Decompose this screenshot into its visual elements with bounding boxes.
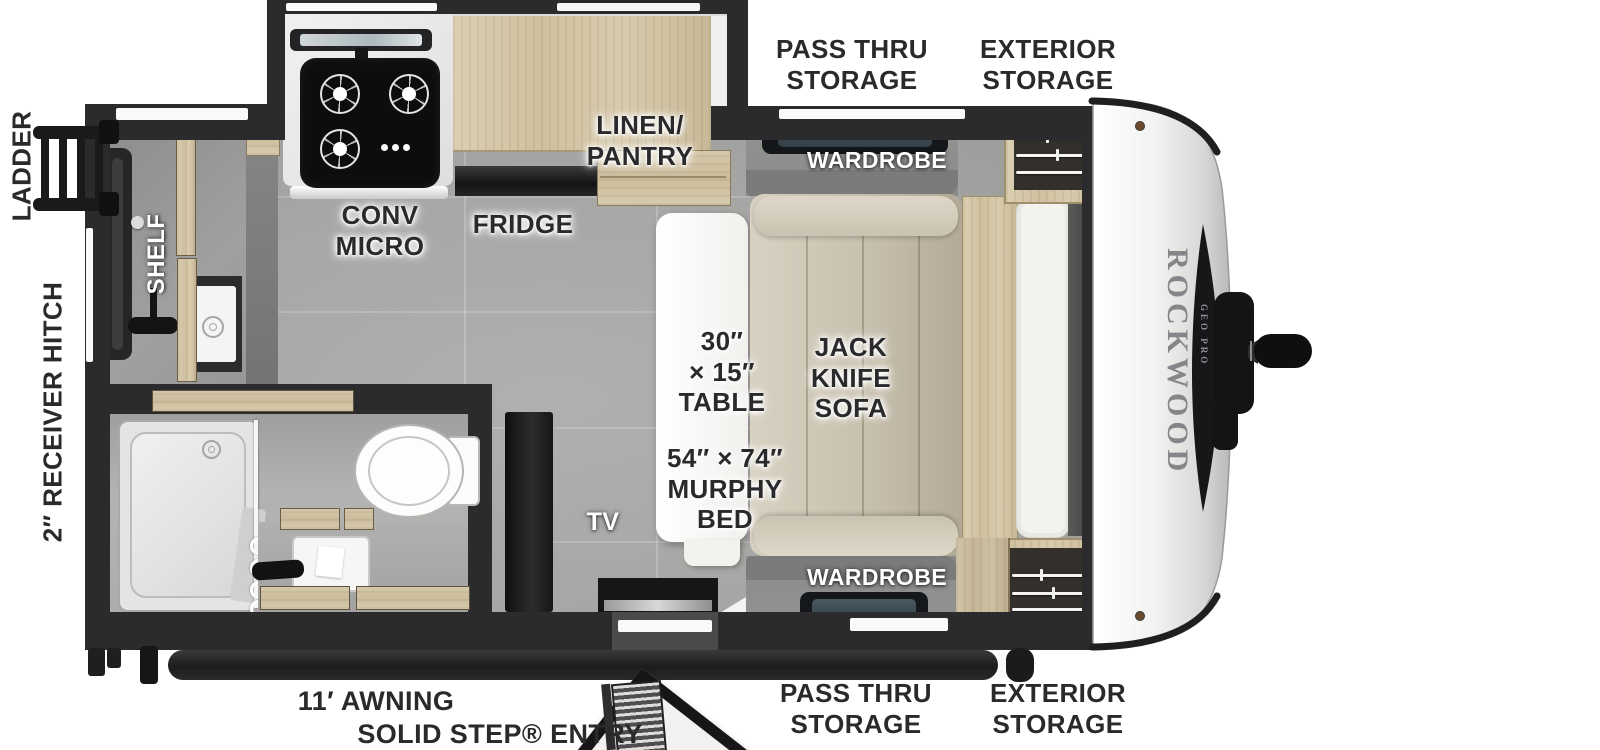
- window-strip: [116, 108, 248, 120]
- tv-cabinet: [505, 412, 553, 612]
- door-threshold: [618, 620, 712, 632]
- rod-hook: [1040, 569, 1043, 581]
- tub-drain: [202, 440, 221, 459]
- toilet-seat: [368, 436, 450, 506]
- label-murphy-bed: 54″ × 74″ MURPHY BED: [635, 443, 815, 535]
- burner: [389, 74, 429, 114]
- brand-logo: ROCKWOOD: [1152, 226, 1194, 498]
- shelf-divider: [177, 258, 197, 382]
- brand-sub-logo: GEO PRO: [1196, 304, 1209, 380]
- vanity-faucet: [251, 559, 304, 581]
- label-wardrobe-top: WARDROBE: [797, 147, 957, 174]
- vanity-wood-piece: [280, 508, 340, 530]
- window-strip: [286, 3, 437, 11]
- label-exterior-storage-top: EXTERIOR STORAGE: [948, 34, 1148, 95]
- awning-joint: [998, 652, 1006, 678]
- murphy-bed-table-leg: [684, 540, 740, 566]
- cooktop-knob: [392, 144, 399, 151]
- ladder-icon: [33, 120, 119, 218]
- burner: [320, 129, 360, 169]
- slideout-left-wall: [267, 0, 285, 140]
- window-strip: [850, 618, 948, 631]
- awning-rail: [168, 650, 998, 680]
- bathtub-inner: [130, 432, 246, 598]
- awning-bracket: [140, 646, 158, 684]
- bed-platform: [962, 196, 1018, 540]
- tongue-jack-foot: [1212, 406, 1238, 450]
- label-wardrobe-bottom: WARDROBE: [797, 564, 957, 591]
- label-pass-thru-storage-bottom: PASS THRU STORAGE: [756, 678, 956, 739]
- label-ladder: LADDER: [7, 111, 38, 222]
- window-strip: [779, 109, 965, 119]
- marker-light: [1136, 612, 1145, 621]
- label-jack-knife-sofa: JACK KNIFE SOFA: [771, 332, 931, 424]
- label-exterior-storage-bottom: EXTERIOR STORAGE: [958, 678, 1158, 739]
- label-linen-pantry: LINEN/ PANTRY: [560, 110, 720, 171]
- rear-window-strip: [86, 228, 93, 362]
- rear-bumper: [88, 648, 105, 676]
- marker-light: [1136, 122, 1145, 131]
- label-receiver-hitch: 2″ RECEIVER HITCH: [38, 282, 69, 543]
- label-fridge: FRIDGE: [443, 209, 603, 240]
- shelf-divider: [176, 132, 196, 256]
- awning-end-cap: [1006, 648, 1034, 682]
- vanity-wood-piece: [344, 508, 374, 530]
- window-strip: [557, 3, 700, 11]
- bottom-wall-left: [85, 612, 612, 650]
- burner: [320, 74, 360, 114]
- rear-bumper: [107, 648, 121, 668]
- label-pass-thru-storage-top: PASS THRU STORAGE: [752, 34, 952, 95]
- rear-sink-drain: [202, 316, 224, 338]
- slideout-right-wall: [727, 0, 748, 116]
- drawer-line: [600, 176, 726, 178]
- cooktop-knob: [381, 144, 388, 151]
- label-shelf: SHELF: [143, 214, 171, 295]
- rod-hook: [1052, 587, 1055, 599]
- cooktop-knob: [403, 144, 410, 151]
- label-tv: TV: [573, 508, 633, 538]
- rear-cabinet-column: [246, 138, 278, 392]
- label-solid-step-entry: SOLID STEP® ENTRY: [350, 719, 650, 750]
- rod-hook: [1056, 149, 1059, 161]
- sofa-bolster-top: [754, 196, 958, 236]
- kitchen-sink-glass: [300, 34, 422, 46]
- label-conv-micro: CONV MICRO: [300, 200, 460, 261]
- label-awning: 11′ AWNING: [256, 686, 496, 718]
- floorplan-canvas: ROCKWOOD GEO PRO PASS THRU STORAGE EXTER…: [0, 0, 1600, 750]
- vanity-step: [260, 586, 350, 610]
- vanity-card: [316, 546, 345, 579]
- jack-handle: [1254, 334, 1312, 368]
- entry-step-box-tread: [604, 600, 712, 611]
- divider-shelf: [152, 390, 354, 412]
- vanity-step: [356, 586, 470, 610]
